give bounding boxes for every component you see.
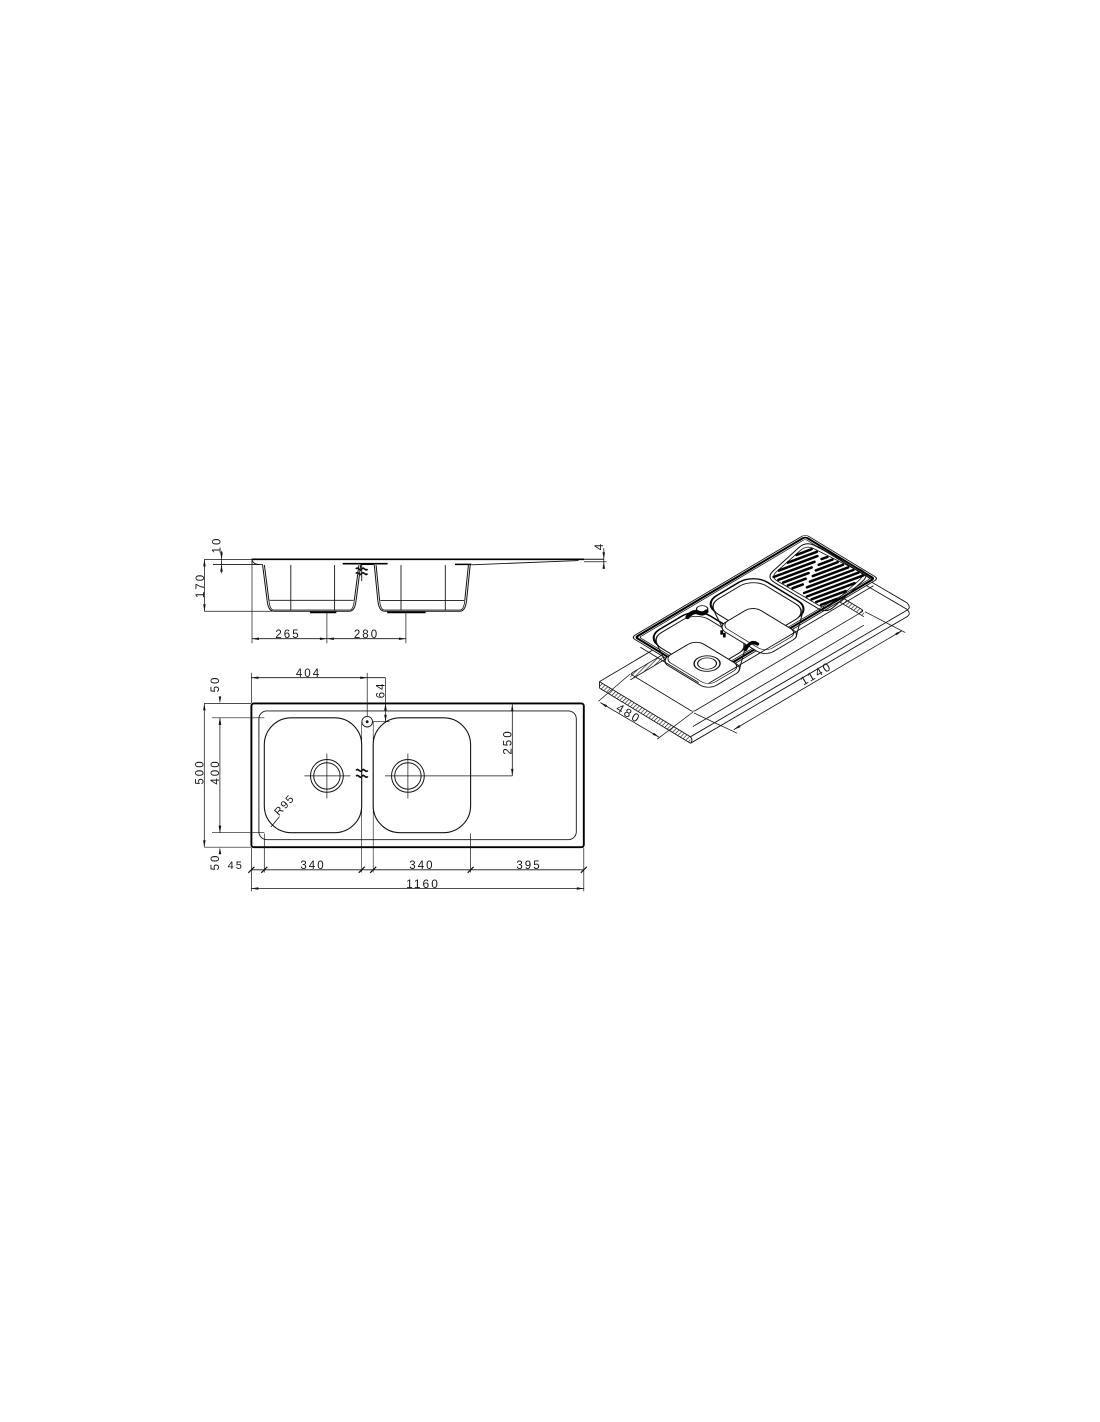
svg-text:4: 4 [594,542,606,550]
svg-text:395: 395 [516,860,541,872]
svg-text:404: 404 [296,668,321,680]
svg-text:265: 265 [275,629,300,641]
svg-text:1160: 1160 [406,877,440,891]
svg-text:45: 45 [228,860,244,872]
svg-text:50: 50 [210,676,222,693]
svg-text:170: 170 [195,573,207,598]
svg-text:340: 340 [409,860,434,872]
svg-text:50: 50 [210,854,222,871]
svg-text:64: 64 [376,682,388,699]
svg-text:250: 250 [502,729,514,754]
svg-text:280: 280 [354,629,379,641]
svg-text:10: 10 [212,537,224,554]
svg-text:400: 400 [210,759,222,784]
svg-text:340: 340 [300,860,325,872]
svg-text:500: 500 [194,759,206,784]
